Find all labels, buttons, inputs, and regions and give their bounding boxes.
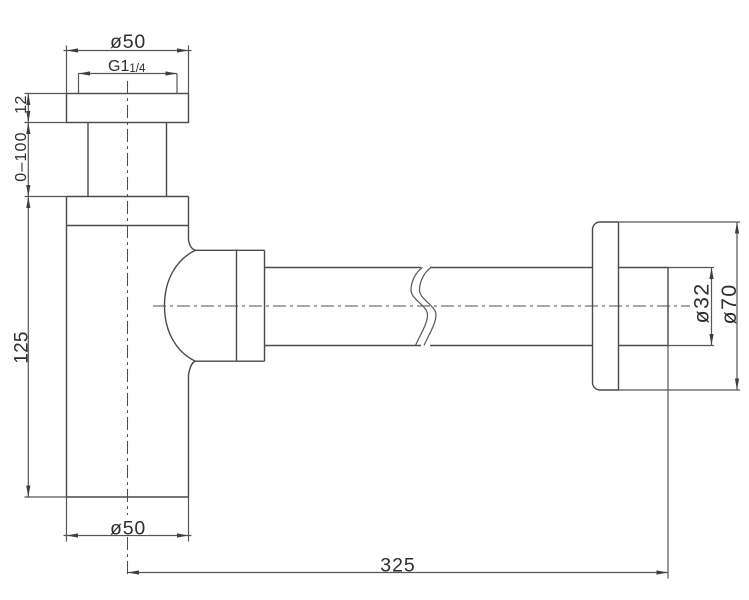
svg-text:ø50: ø50	[110, 518, 146, 540]
svg-text:ø32: ø32	[690, 283, 714, 324]
svg-text:0–100: 0–100	[13, 131, 30, 182]
svg-text:ø70: ø70	[717, 284, 741, 325]
svg-text:12: 12	[13, 95, 30, 114]
svg-text:125: 125	[12, 331, 33, 364]
svg-text:325: 325	[380, 555, 416, 577]
svg-text:ø50: ø50	[110, 31, 146, 53]
